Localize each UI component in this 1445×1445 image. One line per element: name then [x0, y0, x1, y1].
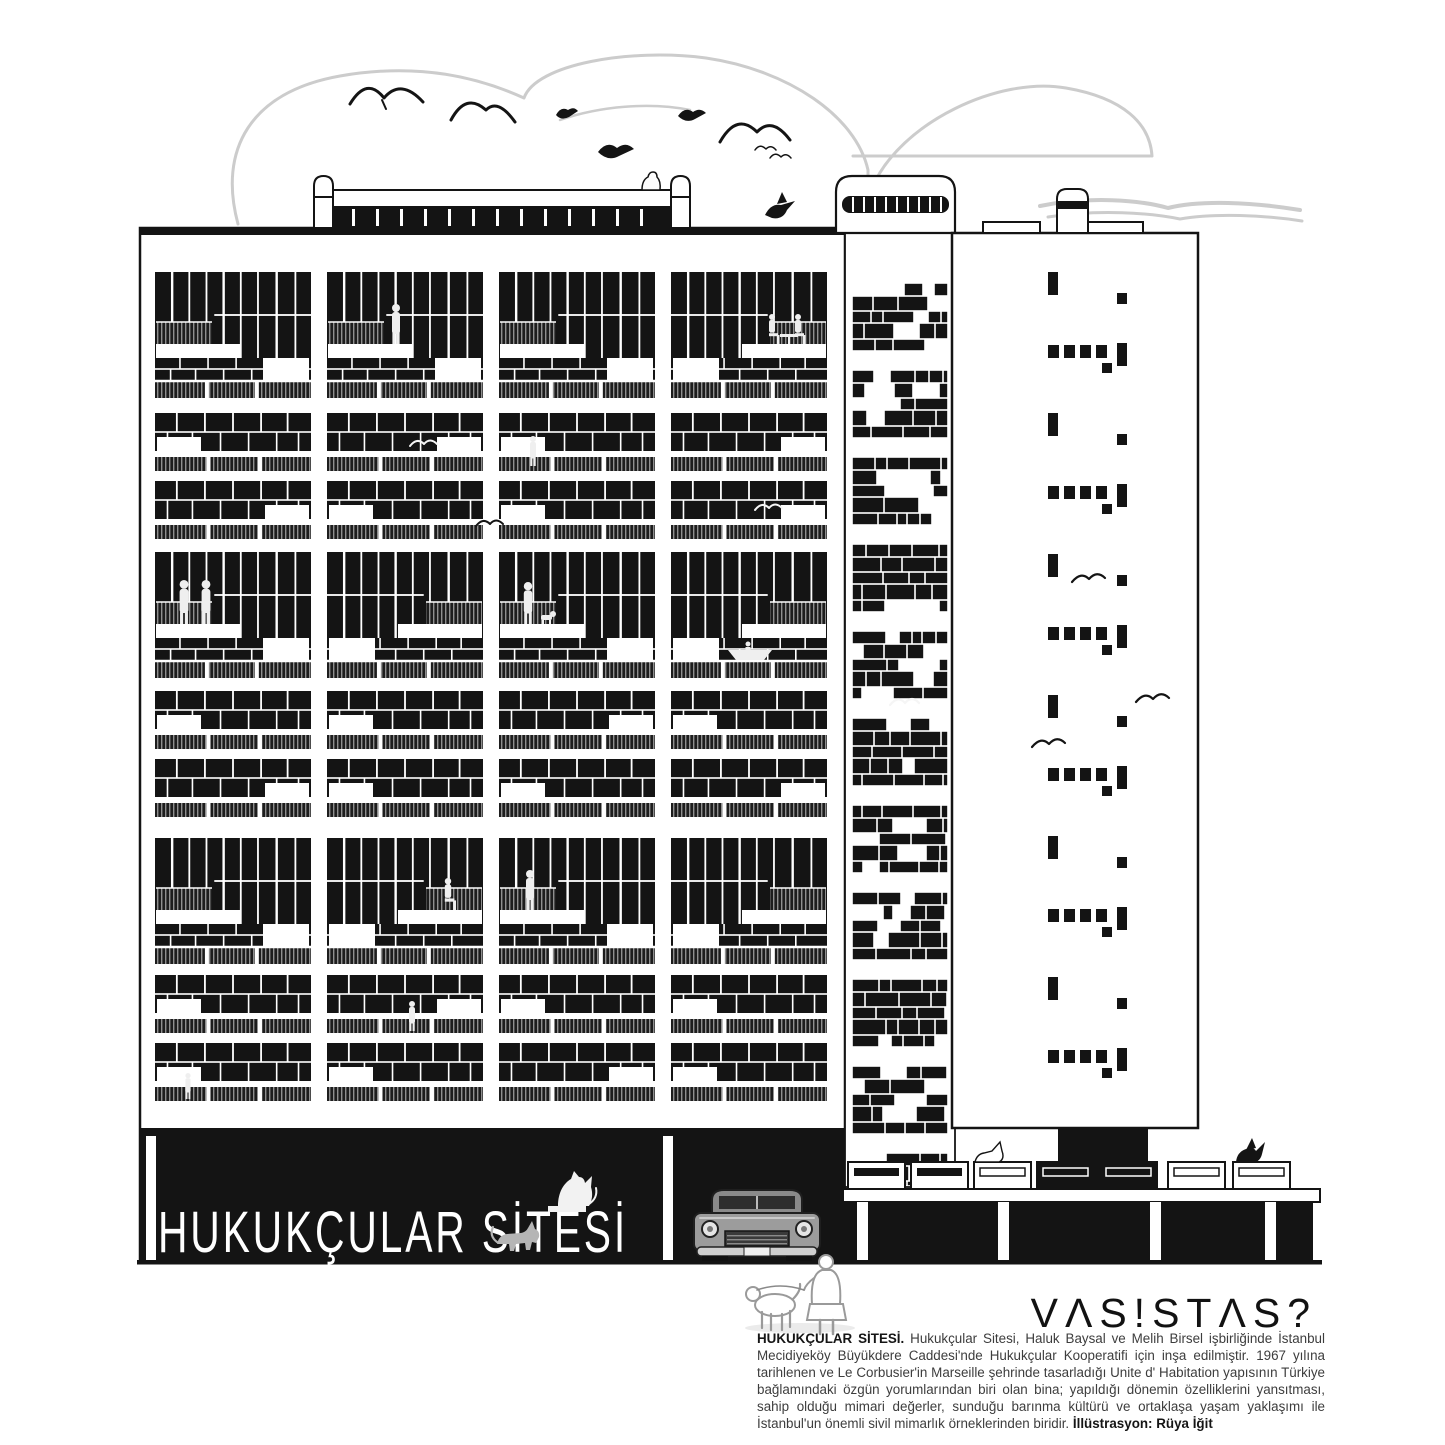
facade-module	[499, 413, 655, 471]
main-building-block	[140, 228, 845, 1263]
facade-module	[499, 838, 655, 964]
stair-tower-connector	[836, 176, 955, 1187]
facade-module	[155, 413, 311, 471]
facade-module	[499, 552, 655, 678]
facade-module	[155, 838, 311, 964]
facade-module	[499, 272, 655, 398]
facade-module	[671, 975, 827, 1033]
poster-page: HUKUKÇULAR SİTESİ HUKUKÇULAR SİTESİ. Huk…	[0, 0, 1445, 1445]
facade-module	[499, 481, 655, 539]
facade-module	[327, 691, 483, 749]
pedestrian-with-dog	[745, 1255, 855, 1334]
facade-module	[327, 413, 483, 471]
facade-module	[499, 1043, 655, 1101]
tower-window	[1048, 554, 1058, 577]
mosaic-panel	[853, 980, 947, 1046]
caption-block: HUKUKÇULAR SİTESİ. Hukukçular Sitesi, Ha…	[757, 1330, 1325, 1432]
vintage-car	[694, 1190, 820, 1261]
facade-module	[671, 691, 827, 749]
facade-module	[327, 975, 483, 1033]
facade-module	[155, 975, 311, 1033]
tower-window	[1048, 272, 1058, 295]
facade-module	[327, 552, 483, 678]
tower-window	[1048, 977, 1058, 1000]
tower-window	[1048, 836, 1058, 859]
building-illustration: HUKUKÇULAR SİTESİ	[0, 0, 1445, 1445]
facade-module	[327, 838, 483, 964]
facade-module	[499, 691, 655, 749]
tower-window	[1048, 695, 1058, 718]
brand-logo: VΛS!STΛS?	[1031, 1290, 1317, 1337]
facade-module	[155, 552, 311, 678]
facade-module	[671, 413, 827, 471]
caption-title: HUKUKÇULAR SİTESİ.	[757, 1331, 904, 1346]
facade-module	[327, 481, 483, 539]
facade-module	[499, 759, 655, 817]
facade-module	[671, 1043, 827, 1101]
tower-window	[1048, 413, 1058, 436]
facade-module	[671, 759, 827, 817]
elevator-tower	[952, 189, 1198, 1128]
facade-module	[327, 759, 483, 817]
facade-module	[327, 272, 483, 398]
facade-module	[155, 691, 311, 749]
facade-module	[155, 759, 311, 817]
rooftop-penthouse	[314, 172, 690, 228]
facade-module	[499, 975, 655, 1033]
facade-module	[327, 1043, 483, 1101]
facade-module	[671, 838, 827, 964]
facade-module	[155, 481, 311, 539]
facade-module	[155, 1043, 311, 1101]
caption-body: Hukukçular Sitesi, Haluk Baysal ve Melih…	[757, 1331, 1325, 1431]
facade-module	[155, 272, 311, 398]
caption-credit: İllüstrasyon: Rüya İğit	[1073, 1416, 1213, 1431]
facade-module	[671, 481, 827, 539]
